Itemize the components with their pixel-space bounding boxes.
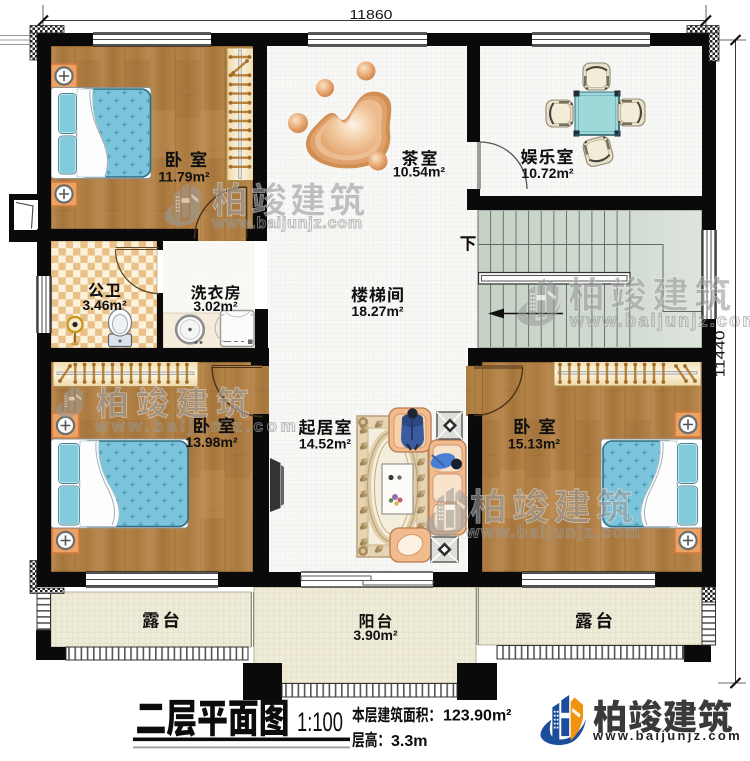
svg-text:www.baijunjz.com: www.baijunjz.com: [569, 311, 750, 331]
svg-text:13.98m²: 13.98m²: [185, 434, 237, 450]
svg-text:3.90m²: 3.90m²: [353, 627, 398, 643]
svg-text:14.52m²: 14.52m²: [299, 436, 351, 452]
svg-text:15.13m²: 15.13m²: [508, 436, 560, 452]
svg-text:10.72m²: 10.72m²: [521, 165, 573, 181]
svg-text:11.79m²: 11.79m²: [158, 169, 210, 185]
svg-text:10.54m²: 10.54m²: [393, 164, 445, 180]
svg-text:www.baijunjz.com: www.baijunjz.com: [592, 728, 742, 743]
svg-text:3.46m²: 3.46m²: [82, 297, 127, 313]
svg-text:11860: 11860: [350, 8, 393, 22]
svg-text:3.02m²: 3.02m²: [193, 298, 238, 314]
svg-text:3.3m: 3.3m: [391, 733, 427, 750]
svg-text:11440: 11440: [712, 330, 728, 377]
svg-text:1:100: 1:100: [297, 707, 343, 737]
svg-text:123.90m²: 123.90m²: [443, 708, 512, 725]
svg-text:www.baijunjz.com: www.baijunjz.com: [211, 215, 363, 232]
svg-text:www.baijunjz.com: www.baijunjz.com: [465, 523, 642, 542]
svg-text:18.27m²: 18.27m²: [351, 303, 403, 319]
